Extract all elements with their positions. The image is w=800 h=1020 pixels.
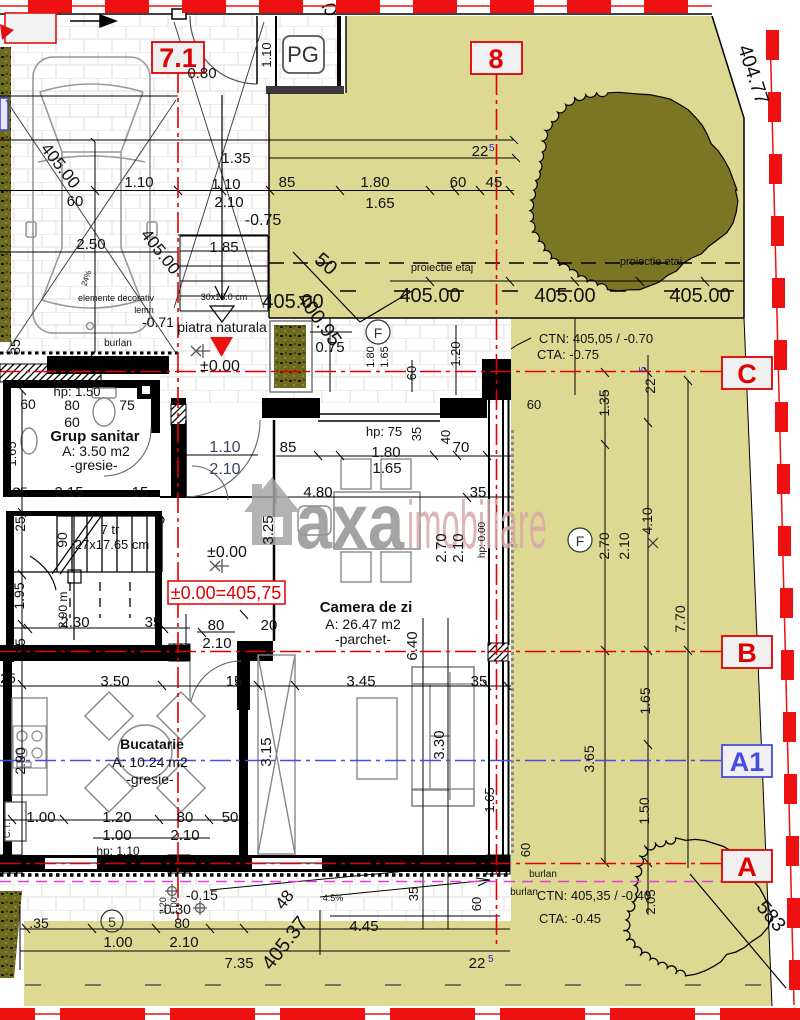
svg-text:A: A: [737, 852, 757, 882]
svg-text:PG: PG: [287, 42, 319, 67]
svg-text:27x17.65 cm: 27x17.65 cm: [75, 537, 149, 552]
svg-text:-gresie-: -gresie-: [126, 771, 174, 787]
svg-text:burlan: burlan: [510, 887, 538, 898]
svg-text:60: 60: [469, 897, 484, 911]
svg-text:Bucatarie: Bucatarie: [120, 736, 184, 752]
svg-text:proiectie etaj: proiectie etaj: [620, 256, 682, 268]
svg-text:1.65: 1.65: [365, 195, 394, 212]
svg-text:85: 85: [279, 174, 296, 191]
svg-text:25: 25: [12, 516, 28, 532]
svg-text:hp: 75: hp: 75: [366, 424, 402, 439]
svg-text:70: 70: [453, 439, 470, 456]
svg-text:-0.71: -0.71: [142, 314, 174, 330]
svg-text:1.65: 1.65: [637, 687, 653, 714]
svg-text:90: 90: [54, 532, 70, 548]
svg-text:2.10: 2.10: [202, 635, 231, 652]
svg-text:1.20: 1.20: [448, 341, 463, 366]
svg-text:1.95: 1.95: [11, 582, 27, 609]
svg-text:1.10: 1.10: [209, 439, 240, 456]
svg-text:6.40: 6.40: [404, 631, 421, 660]
svg-text:1.35: 1.35: [221, 150, 250, 167]
svg-text:CTN: 405,05 / -0.70: CTN: 405,05 / -0.70: [539, 331, 653, 346]
svg-text:B: B: [737, 638, 757, 668]
svg-text:15: 15: [132, 484, 149, 501]
svg-text:1.80: 1.80: [365, 346, 377, 367]
svg-text:7.70: 7.70: [672, 605, 688, 632]
svg-text:2.50: 2.50: [76, 236, 105, 253]
svg-text:1.00: 1.00: [103, 934, 132, 951]
svg-text:-gresie-: -gresie-: [70, 457, 118, 473]
svg-text:1.00: 1.00: [169, 897, 179, 915]
svg-text:35: 35: [406, 887, 421, 901]
svg-text:22: 22: [469, 955, 486, 972]
svg-text:hp: 0.00: hp: 0.00: [477, 521, 488, 558]
svg-text:30x15.0 cm: 30x15.0 cm: [201, 292, 248, 302]
svg-text:Camera de zi: Camera de zi: [320, 599, 413, 616]
svg-text:75: 75: [119, 397, 135, 413]
svg-text:C: C: [737, 359, 757, 389]
svg-text:85: 85: [280, 439, 297, 456]
svg-text:1.10: 1.10: [211, 176, 240, 193]
svg-text:CTA: -0.75: CTA: -0.75: [537, 347, 599, 362]
svg-text:1.00: 1.00: [26, 809, 55, 826]
svg-text:2.10: 2.10: [209, 461, 240, 478]
svg-text:60: 60: [527, 397, 541, 412]
svg-text:1.80: 1.80: [371, 444, 400, 461]
svg-text:3.65: 3.65: [581, 745, 597, 772]
svg-text:2.10: 2.10: [450, 533, 467, 562]
svg-text:3.25: 3.25: [260, 515, 277, 544]
svg-text:1.10: 1.10: [259, 42, 274, 67]
svg-text:1.10: 1.10: [124, 174, 153, 191]
svg-text:A: 10.24 m2: A: 10.24 m2: [112, 754, 188, 770]
svg-text:2.30: 2.30: [60, 614, 89, 631]
svg-text:5: 5: [489, 143, 495, 154]
svg-text:1.20: 1.20: [158, 897, 168, 915]
svg-text:40: 40: [438, 430, 453, 444]
svg-text:5: 5: [108, 914, 116, 930]
svg-text:1.35: 1.35: [596, 389, 612, 416]
svg-text:8: 8: [488, 44, 503, 74]
svg-text:1.65: 1.65: [372, 460, 401, 477]
svg-text:25: 25: [0, 670, 16, 686]
svg-text:405.00: 405.00: [534, 285, 595, 307]
svg-text:80: 80: [64, 397, 80, 413]
svg-text:burlan: burlan: [104, 338, 132, 349]
svg-text:burlan: burlan: [529, 869, 557, 880]
svg-text:5: 5: [488, 954, 494, 965]
svg-text:405.00: 405.00: [399, 285, 460, 307]
svg-text:25: 25: [12, 484, 28, 500]
svg-text:7 tr: 7 tr: [101, 522, 120, 537]
svg-text:-parchet-: -parchet-: [335, 631, 391, 647]
svg-text:35: 35: [145, 614, 162, 631]
svg-text:3.45: 3.45: [346, 673, 375, 690]
svg-text:50: 50: [222, 809, 239, 826]
svg-text:22: 22: [642, 378, 658, 394]
svg-text:A1: A1: [730, 747, 765, 777]
svg-text:60: 60: [518, 843, 533, 857]
svg-text:4.5%: 4.5%: [323, 893, 344, 903]
svg-text:80: 80: [174, 915, 190, 931]
svg-text:3.15: 3.15: [258, 737, 275, 766]
svg-text:4.45: 4.45: [349, 918, 378, 935]
svg-text:elemente decorativ: elemente decorativ: [78, 293, 155, 303]
svg-text:A: 26.47 m2: A: 26.47 m2: [325, 616, 401, 632]
svg-text:2.70: 2.70: [596, 532, 612, 559]
svg-text:35: 35: [7, 339, 23, 355]
svg-text:405.00: 405.00: [262, 291, 323, 313]
svg-text:4.10: 4.10: [639, 507, 655, 534]
svg-text:hp: 1.10: hp: 1.10: [96, 844, 140, 858]
svg-text:proiectie etaj: proiectie etaj: [411, 262, 473, 274]
svg-text:1.65: 1.65: [482, 787, 497, 812]
svg-text:3.50: 3.50: [100, 673, 129, 690]
svg-text:7.35: 7.35: [224, 955, 253, 972]
svg-text:1.65: 1.65: [379, 346, 391, 367]
svg-text:80: 80: [177, 809, 194, 826]
svg-text:1.80: 1.80: [360, 174, 389, 191]
svg-text:±0.00: ±0.00: [200, 358, 240, 375]
svg-text:35: 35: [470, 484, 487, 501]
svg-text:piatra naturala: piatra naturala: [177, 319, 267, 335]
svg-text:3.30: 3.30: [431, 730, 448, 759]
svg-text:1.65: 1.65: [4, 441, 19, 466]
svg-text:80: 80: [208, 617, 225, 634]
svg-text:1.20: 1.20: [102, 809, 131, 826]
svg-text:60: 60: [20, 396, 36, 412]
svg-text:60: 60: [67, 193, 84, 210]
svg-text:F: F: [374, 325, 383, 341]
svg-text:CTA: -0.45: CTA: -0.45: [539, 911, 601, 926]
svg-text:C.T.: C.T.: [2, 822, 12, 838]
svg-text:1.00: 1.00: [102, 827, 131, 844]
svg-text:2.90: 2.90: [12, 747, 28, 774]
svg-text:60: 60: [450, 174, 467, 191]
svg-text:CTN: 405,35 / -0.40: CTN: 405,35 / -0.40: [537, 888, 651, 903]
svg-text:1.50: 1.50: [636, 797, 652, 824]
svg-text:4.80: 4.80: [303, 484, 332, 501]
svg-text:2.15: 2.15: [54, 484, 83, 501]
svg-text:15: 15: [226, 673, 243, 690]
svg-text:405.00: 405.00: [669, 285, 730, 307]
svg-text:.35: .35: [29, 915, 49, 931]
svg-text:0.80: 0.80: [187, 65, 216, 82]
svg-text:-0.75: -0.75: [245, 212, 282, 229]
svg-text:22: 22: [472, 143, 489, 160]
svg-text:25: 25: [12, 638, 28, 654]
svg-text:35: 35: [471, 673, 488, 690]
svg-text:±0.00=405,75: ±0.00=405,75: [171, 583, 281, 603]
svg-text:2.10: 2.10: [170, 827, 199, 844]
svg-text:2.10: 2.10: [169, 934, 198, 951]
svg-text:2.10: 2.10: [214, 194, 243, 211]
svg-text:±0.00: ±0.00: [207, 544, 247, 561]
svg-text:1.85: 1.85: [209, 239, 238, 256]
svg-text:45: 45: [486, 174, 503, 191]
svg-text:20: 20: [261, 617, 278, 634]
svg-text:F: F: [576, 533, 585, 549]
svg-text:35: 35: [409, 427, 424, 441]
svg-text:2.10: 2.10: [616, 532, 632, 559]
svg-text:2.70: 2.70: [433, 533, 450, 562]
svg-text:60: 60: [404, 366, 419, 380]
svg-text:5: 5: [638, 366, 649, 372]
